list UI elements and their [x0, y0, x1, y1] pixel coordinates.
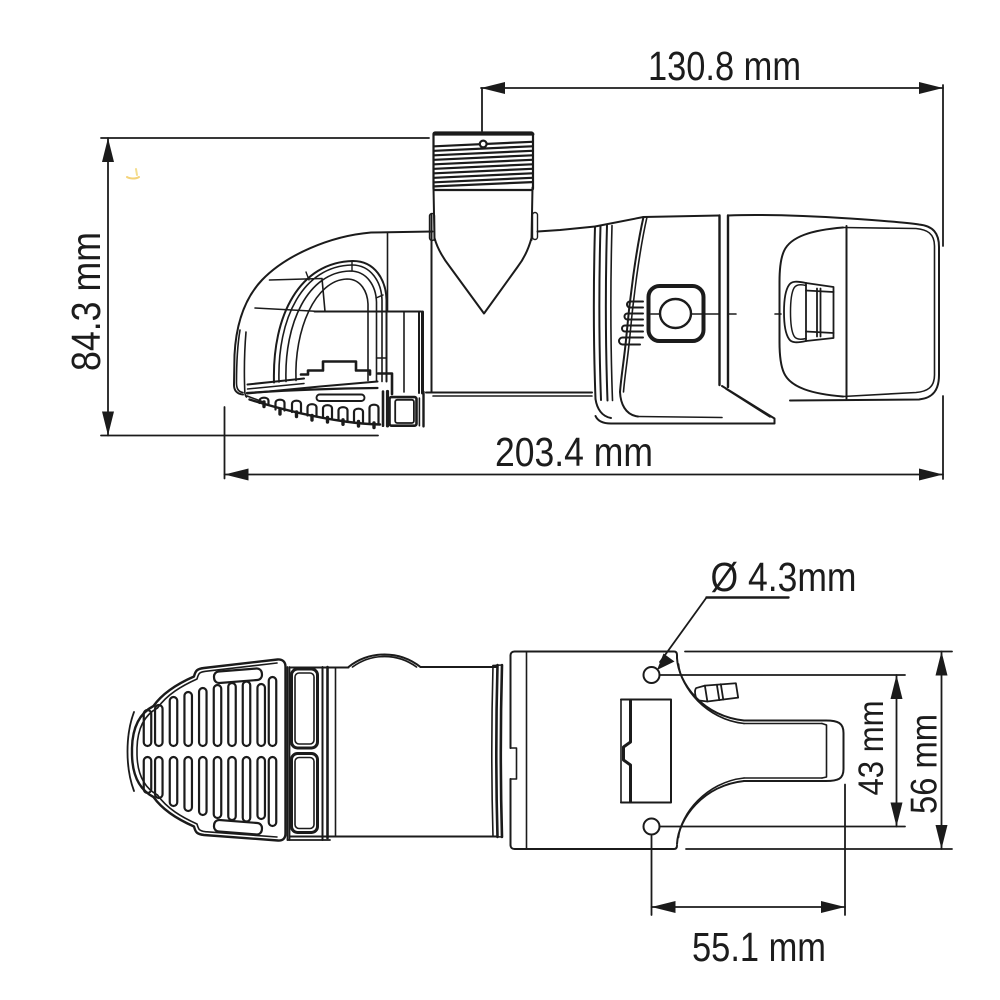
- svg-text:130.8 mm: 130.8 mm: [648, 43, 801, 89]
- svg-text:43 mm: 43 mm: [852, 701, 891, 796]
- svg-text:Ø 4.3mm: Ø 4.3mm: [711, 554, 857, 600]
- svg-text:203.4 mm: 203.4 mm: [495, 429, 653, 475]
- svg-text:55.1 mm: 55.1 mm: [692, 924, 826, 970]
- svg-text:56 mm: 56 mm: [904, 714, 945, 814]
- svg-text:84.3 mm: 84.3 mm: [63, 232, 109, 371]
